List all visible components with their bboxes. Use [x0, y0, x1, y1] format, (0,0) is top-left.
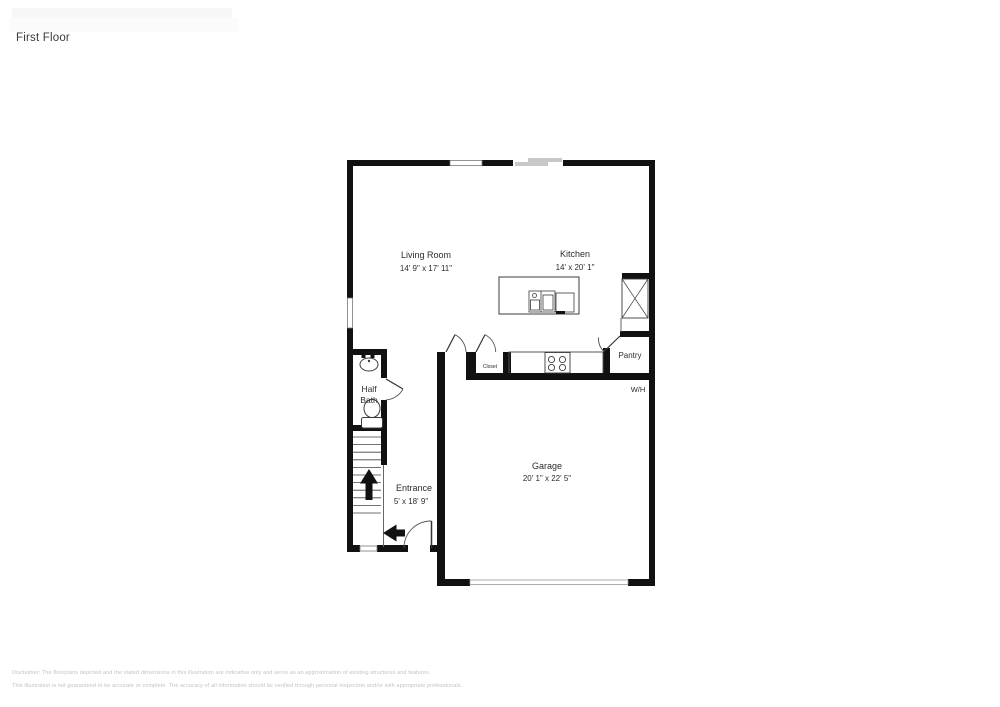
island-sink-icon: [529, 291, 555, 312]
window-top: [450, 161, 482, 166]
walls: [347, 160, 655, 586]
living-room-label: Living Room: [401, 250, 451, 260]
garage-entry-door: [446, 335, 466, 352]
water-heater-label: W/H: [631, 385, 646, 394]
half-bath-label-line1: Half: [361, 384, 377, 394]
pantry-label: Pantry: [618, 351, 641, 360]
kitchen-island: [499, 277, 579, 314]
half-bath-door: [386, 379, 403, 400]
floorplan-page: First Floor: [0, 0, 1000, 707]
garage-label: Garage: [532, 461, 562, 471]
disclaimer-line-1: Disclaimer: The floorplans depicted and …: [12, 667, 462, 680]
entrance-label: Entrance: [396, 483, 432, 493]
sliding-window-pane-1: [515, 162, 548, 166]
closet-door: [476, 335, 496, 352]
window-left: [348, 298, 353, 328]
living-room-dims: 14' 9" x 17' 11": [400, 264, 452, 273]
entry-direction-arrow-icon: [383, 525, 405, 542]
garage-dims: 20' 1" x 22' 5": [523, 474, 571, 483]
half-bath-label-line2: Bath: [360, 395, 378, 405]
dishwasher-icon: [556, 293, 574, 312]
window-entrance: [360, 546, 377, 551]
floorplan-drawing: Living Room 14' 9" x 17' 11" Kitchen 14'…: [0, 0, 1000, 707]
stove-icon: [545, 353, 570, 374]
bathroom-sink-icon: [360, 355, 378, 372]
kitchen-label: Kitchen: [560, 249, 590, 259]
disclaimer: Disclaimer: The floorplans depicted and …: [12, 667, 462, 692]
entrance-dims: 5' x 18' 9": [394, 497, 429, 506]
garage-door: [470, 580, 628, 585]
closet-label: Closet: [483, 364, 498, 370]
front-door: [404, 521, 432, 548]
kitchen-dims: 14' x 20' 1": [556, 263, 595, 272]
island-mark: [556, 311, 565, 314]
stairs-up-arrow-icon: [360, 469, 378, 500]
sliding-window-pane-2: [528, 158, 562, 162]
disclaimer-line-2: This illustration is not guaranteed to b…: [12, 680, 462, 693]
refrigerator-icon: [622, 279, 648, 318]
